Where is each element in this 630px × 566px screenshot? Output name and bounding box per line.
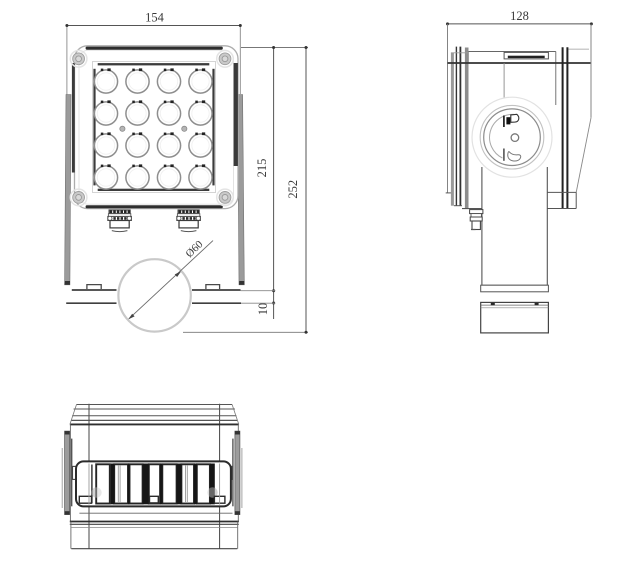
- svg-text:215: 215: [255, 159, 269, 178]
- svg-text:252: 252: [286, 180, 300, 199]
- svg-text:154: 154: [145, 11, 165, 25]
- svg-text:128: 128: [510, 9, 529, 23]
- svg-text:10: 10: [256, 303, 270, 316]
